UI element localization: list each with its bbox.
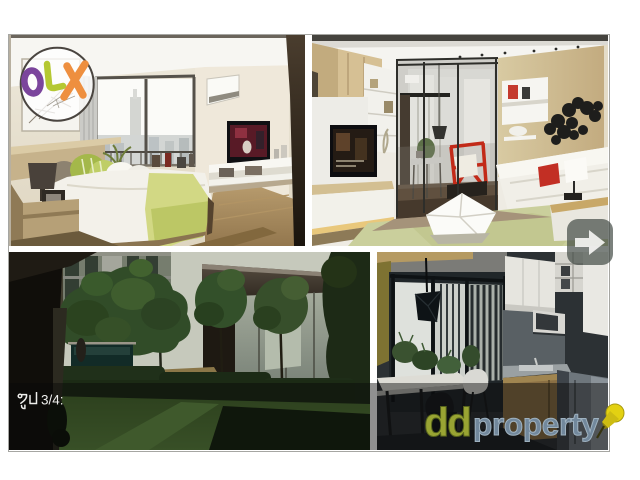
svg-text:property: property (473, 406, 599, 442)
svg-text:dd: dd (424, 399, 470, 445)
svg-text:3/4:: 3/4: (41, 393, 64, 408)
